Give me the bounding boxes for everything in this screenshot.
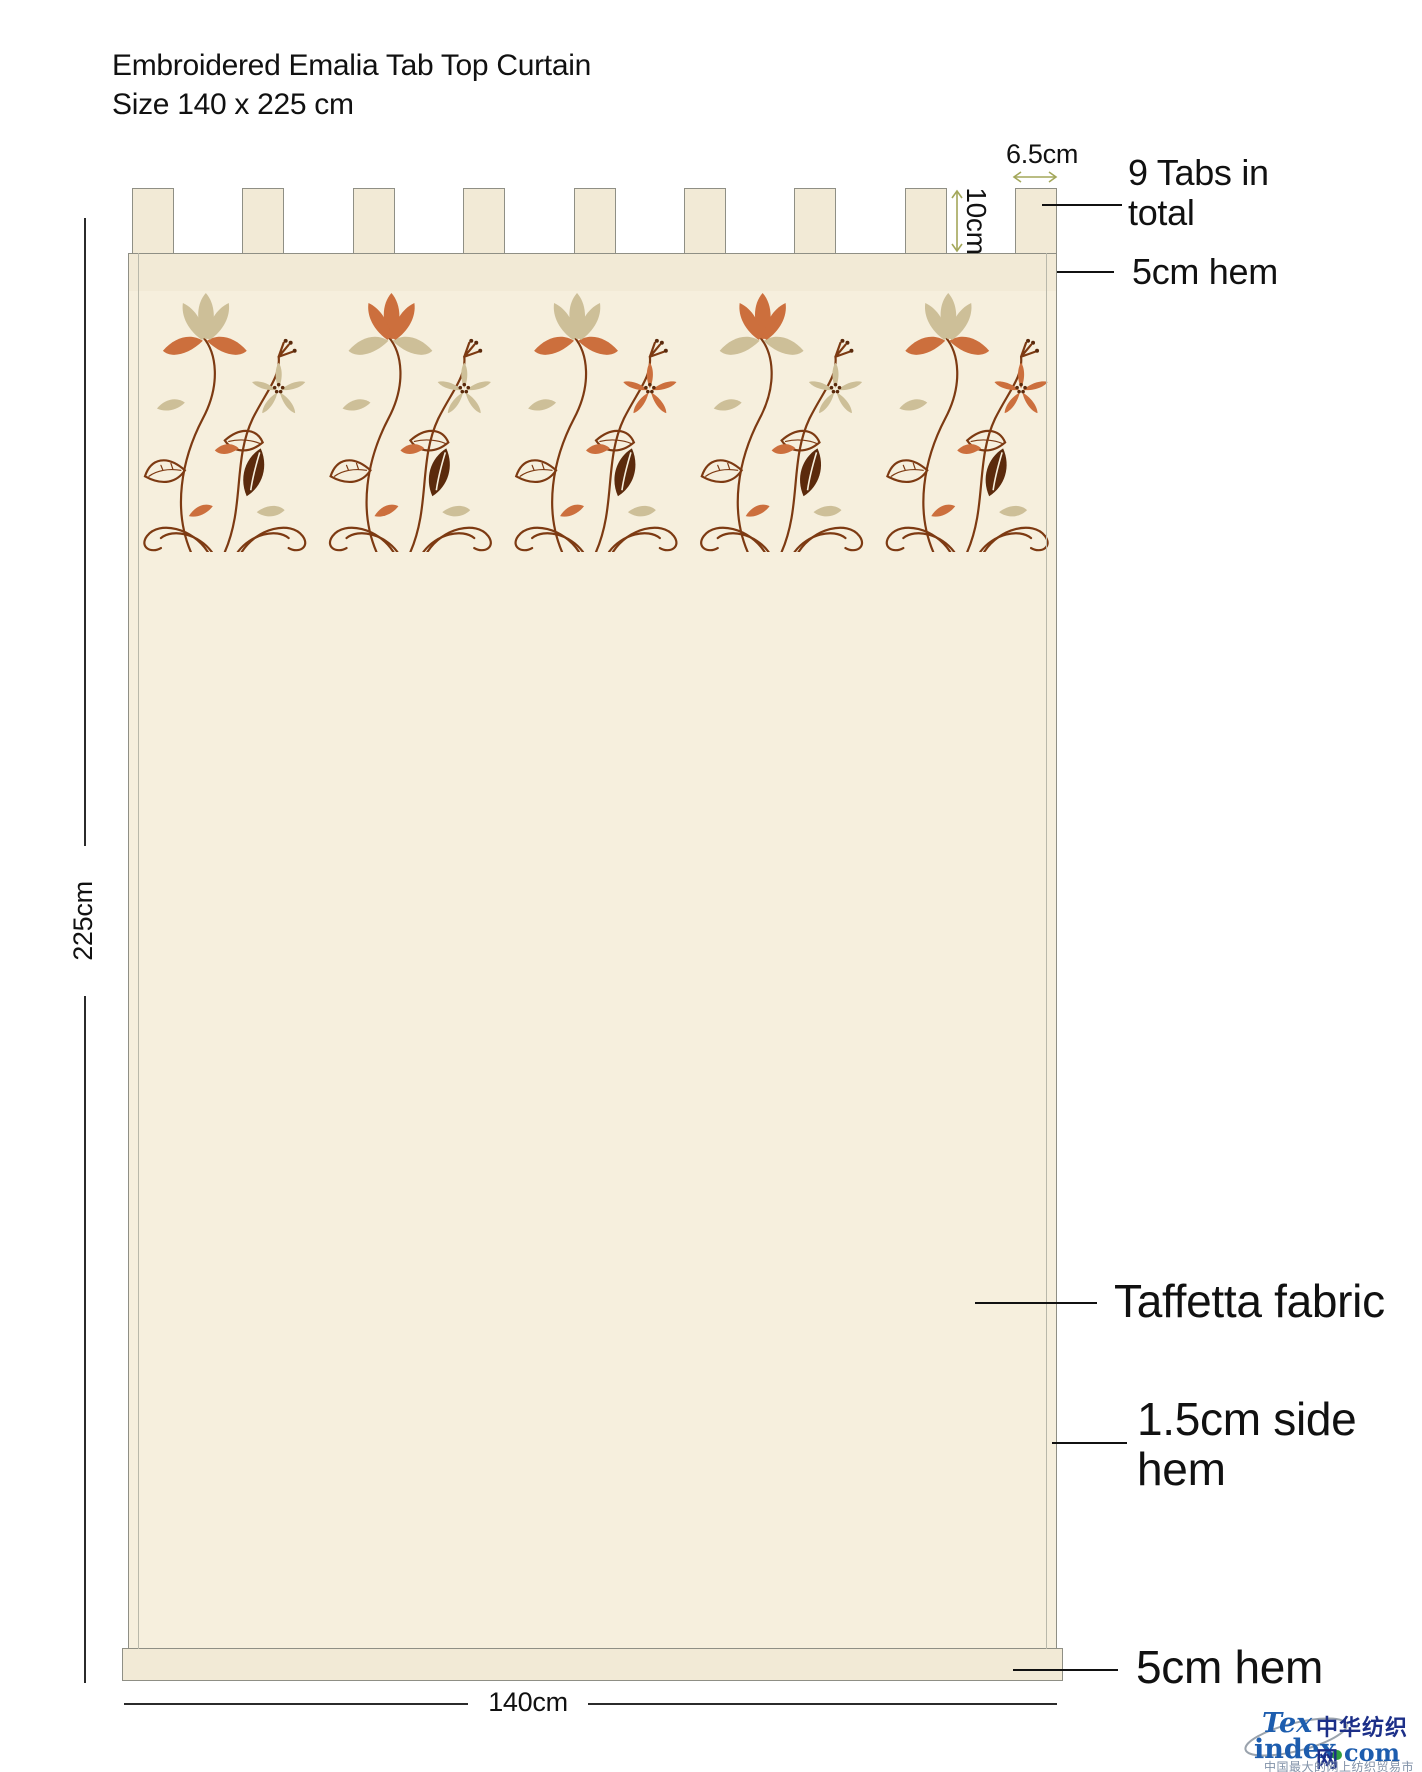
width-dimension-line-left (124, 1703, 468, 1705)
top-hem-label: 5cm hem (1132, 252, 1278, 292)
curtain-tab (574, 188, 616, 254)
logo-chinese-tagline: 中国最大的网上纺织贸易市场 (1264, 1758, 1422, 1772)
tab-width-arrow-icon (1012, 170, 1058, 184)
curtain-height-dimension: 225cm (68, 846, 98, 996)
title-line1: Embroidered Emalia Tab Top Curtain (112, 46, 591, 85)
curtain-tab (463, 188, 505, 254)
bottom-hem-leader-line (1013, 1669, 1118, 1671)
left-side-hem-line (138, 253, 139, 1649)
side-hem-label: 1.5cm side hem (1137, 1394, 1356, 1494)
curtain-tab (794, 188, 836, 254)
bottom-hem-band (122, 1648, 1063, 1681)
texindex-logo: Tex index com 中华纺织网 中国最大的网上纺织贸易市场 (1240, 1708, 1422, 1772)
width-dimension-line-right (588, 1703, 1057, 1705)
tab-height-dimension: 10cm (964, 181, 992, 261)
curtain-width-dimension: 140cm (468, 1687, 588, 1718)
side-hem-line2: hem (1137, 1444, 1356, 1494)
height-dimension-line-lower (84, 996, 86, 1683)
fabric-leader-line (975, 1302, 1097, 1304)
curtain-drawing (128, 188, 1057, 1681)
curtain-tab (684, 188, 726, 254)
tabs-total-line1: 9 Tabs in (1128, 153, 1269, 193)
right-side-hem-line (1046, 253, 1047, 1649)
page-title: Embroidered Emalia Tab Top Curtain Size … (112, 46, 591, 124)
floral-pattern (129, 291, 1056, 552)
curtain-tab (353, 188, 395, 254)
side-hem-leader-line (1052, 1442, 1127, 1444)
curtain-spec-diagram: Embroidered Emalia Tab Top Curtain Size … (0, 0, 1422, 1772)
tabs-total-label: 9 Tabs in total (1128, 153, 1269, 233)
side-hem-line1: 1.5cm side (1137, 1394, 1356, 1444)
curtain-tab (905, 188, 947, 254)
height-dimension-line-upper (84, 218, 86, 846)
curtain-body-fabric (128, 552, 1057, 1649)
curtain-tab (132, 188, 174, 254)
curtain-tab (242, 188, 284, 254)
tabs-total-line2: total (1128, 193, 1269, 233)
fabric-label: Taffetta fabric (1114, 1276, 1385, 1326)
bottom-hem-label: 5cm hem (1136, 1642, 1323, 1692)
title-line2: Size 140 x 225 cm (112, 85, 591, 124)
floral-embroidery-band (128, 291, 1057, 553)
top-hem-leader-line (1057, 271, 1114, 273)
tabs-leader-line (1042, 204, 1122, 206)
top-hem-band (128, 253, 1057, 292)
tab-width-dimension: 6.5cm (1004, 139, 1080, 170)
curtain-tab (1015, 188, 1057, 254)
